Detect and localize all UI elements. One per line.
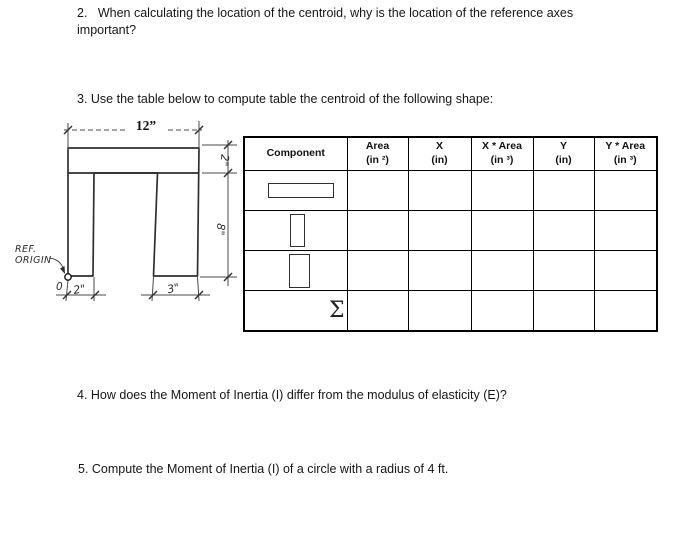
header-component-line1: Component <box>267 147 325 159</box>
bl-ext-left <box>66 280 68 301</box>
table-row-flange <box>244 171 657 211</box>
question-3: 3. Use the table below to compute table … <box>77 91 637 108</box>
header-y-area: Y * Area (in ³) <box>594 137 657 171</box>
origin-point-marker <box>65 274 71 280</box>
empty-cell <box>347 171 408 211</box>
empty-cell <box>347 251 408 291</box>
empty-cell <box>594 171 657 211</box>
sum-symbol-cell: Σ <box>244 291 347 332</box>
top-tick-left <box>64 126 72 134</box>
dim-leg-height-label: 8" <box>213 223 227 236</box>
empty-cell <box>533 211 594 251</box>
empty-cell <box>347 291 408 332</box>
empty-cell <box>408 251 471 291</box>
dim-left-leg-width-label: 2" <box>72 282 86 297</box>
header-y-area-line1: Y * Area <box>596 140 656 154</box>
bottom-right-dimension: 3" <box>141 277 210 301</box>
empty-cell <box>408 211 471 251</box>
br-ext-right <box>198 277 200 301</box>
header-x-area-line2: (in ³) <box>473 154 532 168</box>
table-row-left-leg <box>244 211 657 251</box>
question-2-line2: important? <box>77 22 622 39</box>
empty-cell <box>347 211 408 251</box>
header-y-line1: Y <box>535 140 593 154</box>
bl-tick-right <box>91 291 99 299</box>
ref-origin-arrow <box>49 258 64 269</box>
header-area-line2: (in ²) <box>349 154 407 168</box>
right-dimension: 2" 8" <box>200 140 237 286</box>
header-x-area: X * Area (in ³) <box>471 137 533 171</box>
empty-cell <box>471 251 533 291</box>
header-y: Y (in) <box>533 137 594 171</box>
header-x-area-line1: X * Area <box>473 140 532 154</box>
component-cell-right-leg <box>244 251 347 291</box>
header-x-line2: (in) <box>410 154 470 168</box>
header-area-line1: Area <box>349 140 407 154</box>
question-5: 5. Compute the Moment of Inertia (I) of … <box>78 461 658 478</box>
right-tick-top <box>224 141 232 149</box>
question-2-line1: 2. When calculating the location of the … <box>77 5 622 22</box>
empty-cell <box>594 291 657 332</box>
header-component: Component <box>244 137 347 171</box>
top-dimension: 12” <box>64 118 203 150</box>
table-row-right-leg <box>244 251 657 291</box>
component-cell-flange <box>244 171 347 211</box>
table-header-row: Component Area (in ²) X (in) X * Area (i… <box>244 137 657 171</box>
right-leg-component-sketch <box>289 254 310 288</box>
ref-origin-arrowhead <box>60 266 65 274</box>
worksheet-page: 2. When calculating the location of the … <box>0 0 700 544</box>
br-tick-left <box>149 291 157 299</box>
ref-origin-annotation: REF. ORIGIN 0 <box>15 244 71 293</box>
question-2: 2. When calculating the location of the … <box>77 5 622 39</box>
empty-cell <box>594 251 657 291</box>
bottom-left-dimension: 2" <box>56 277 106 301</box>
empty-cell <box>471 171 533 211</box>
centroid-table: Component Area (in ²) X (in) X * Area (i… <box>243 136 658 332</box>
pi-shape <box>68 148 199 276</box>
br-ext-left <box>152 277 154 301</box>
header-y-area-line2: (in ³) <box>596 154 656 168</box>
empty-cell <box>533 251 594 291</box>
empty-cell <box>471 211 533 251</box>
header-y-line2: (in) <box>535 154 593 168</box>
dim-right-leg-width-label: 3" <box>166 281 181 296</box>
left-leg-component-sketch <box>290 214 305 247</box>
top-tick-right <box>195 126 203 134</box>
header-x-line1: X <box>410 140 470 154</box>
flange-component-sketch <box>268 183 334 198</box>
origin-zero-label: 0 <box>56 281 63 293</box>
ref-label-line2: ORIGIN <box>15 255 52 266</box>
sum-symbol: Σ <box>245 291 347 330</box>
right-tick-mid <box>224 169 232 177</box>
dim-flange-thickness-label: 2" <box>217 154 231 167</box>
empty-cell <box>533 291 594 332</box>
ref-label-line1: REF. <box>15 244 36 255</box>
br-tick-right <box>195 291 203 299</box>
right-tick-bottom <box>224 273 232 281</box>
question-4: 4. How does the Moment of Inertia (I) di… <box>77 387 657 404</box>
empty-cell <box>533 171 594 211</box>
empty-cell <box>471 291 533 332</box>
component-cell-left-leg <box>244 211 347 251</box>
pi-shape-outline <box>68 148 199 276</box>
dim-overall-width-label: 12” <box>136 118 157 133</box>
header-x: X (in) <box>408 137 471 171</box>
empty-cell <box>408 171 471 211</box>
empty-cell <box>408 291 471 332</box>
header-area: Area (in ²) <box>347 137 408 171</box>
bl-tick-left <box>63 291 71 299</box>
table-row-sum: Σ <box>244 291 657 332</box>
empty-cell <box>594 211 657 251</box>
